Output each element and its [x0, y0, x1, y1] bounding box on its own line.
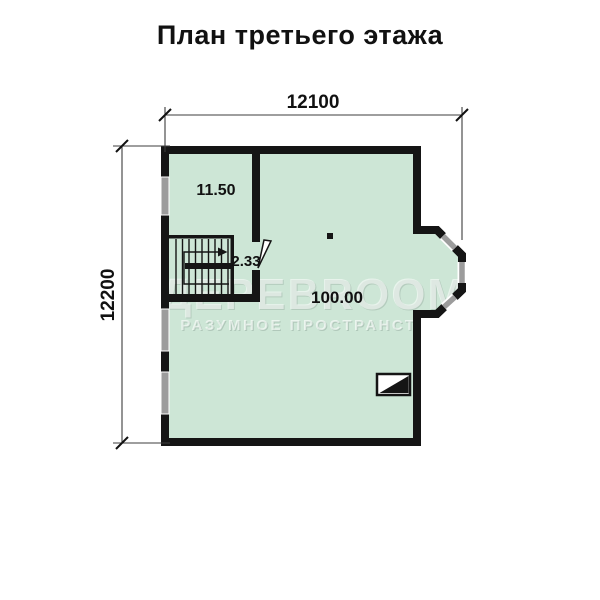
stair-mid-rail: [185, 263, 234, 269]
window-icon: [161, 309, 169, 351]
stair-top-rail: [169, 235, 234, 239]
flue-symbol: [377, 374, 410, 395]
window-icon: [161, 177, 169, 215]
floor-plan-drawing: ДЕРЕВROOM ДЕРЕВROOM РАЗУМНОЕ ПРОСТРАНСТВ…: [0, 0, 600, 600]
dimension-top-value: 12100: [287, 92, 340, 113]
stair-bottom-wall: [163, 294, 260, 302]
room-area-label-main: 100.00: [311, 288, 363, 307]
window-icon: [161, 372, 169, 414]
room-area-label-upper-left: 11.50: [196, 182, 235, 199]
room-area-label-stairs: 2.33: [231, 253, 260, 270]
watermark-slogan: РАЗУМНОЕ ПРОСТРАНСТВО: [180, 317, 443, 334]
dimension-left: 12200: [98, 140, 170, 449]
partition-wall-upper: [252, 150, 260, 242]
column-marker: [327, 233, 333, 239]
dimension-left-value: 12200: [98, 269, 119, 322]
